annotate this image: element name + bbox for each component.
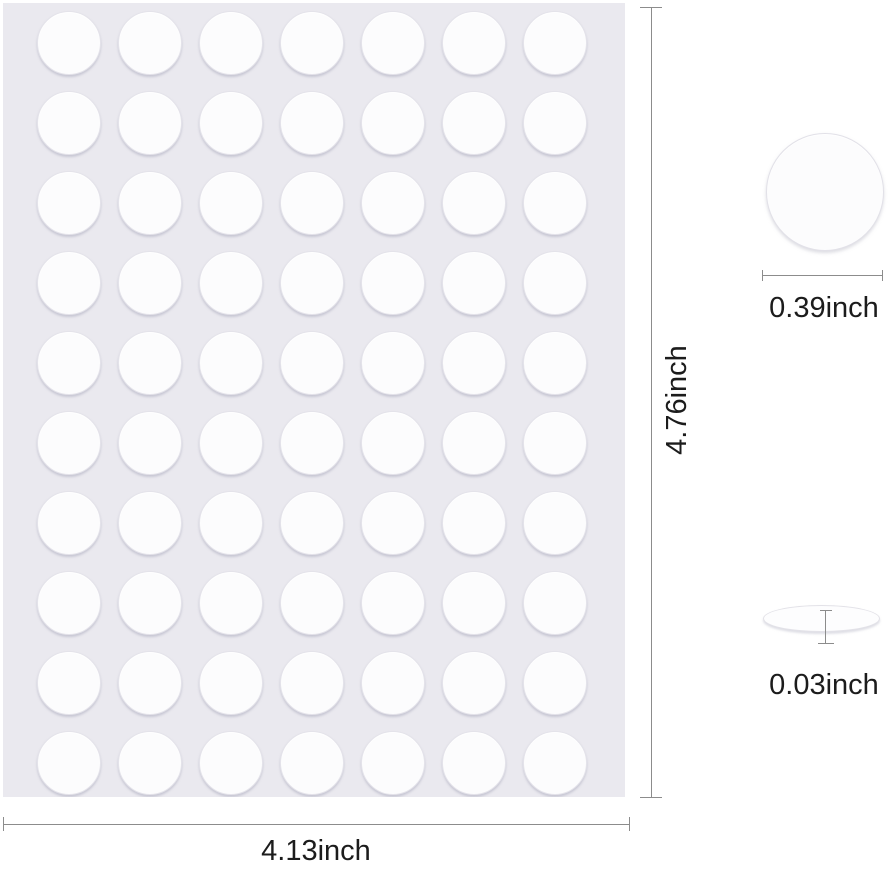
adhesive-dot <box>280 651 344 715</box>
dot-diameter-label: 0.39inch <box>769 293 879 325</box>
adhesive-dot <box>37 491 101 555</box>
dot-thickness-cap-top <box>820 610 832 611</box>
sheet-height-label: 4.76inch <box>662 345 694 455</box>
adhesive-dot <box>442 731 506 795</box>
adhesive-dot <box>118 11 182 75</box>
sheet-width-dimension-line <box>3 824 630 825</box>
adhesive-dot <box>523 731 587 795</box>
adhesive-dot <box>280 171 344 235</box>
dot-diameter-tick-right <box>882 270 883 281</box>
adhesive-dot <box>199 651 263 715</box>
adhesive-dot <box>523 491 587 555</box>
adhesive-dot <box>199 411 263 475</box>
adhesive-dot <box>118 91 182 155</box>
adhesive-dot <box>280 11 344 75</box>
adhesive-dot <box>118 411 182 475</box>
adhesive-dot <box>199 11 263 75</box>
dot-thickness-label: 0.03inch <box>769 670 879 702</box>
adhesive-dot <box>118 331 182 395</box>
adhesive-dot <box>523 171 587 235</box>
adhesive-dot <box>118 651 182 715</box>
sheet-width-dimension-tick-right <box>629 817 630 831</box>
adhesive-dot <box>361 571 425 635</box>
adhesive-dot <box>361 651 425 715</box>
adhesive-dot <box>361 331 425 395</box>
adhesive-dot <box>199 571 263 635</box>
adhesive-dot <box>361 251 425 315</box>
adhesive-dot <box>37 651 101 715</box>
adhesive-dot <box>442 91 506 155</box>
dot-diameter-dimension-line <box>762 275 883 276</box>
adhesive-dot <box>361 11 425 75</box>
adhesive-dot <box>442 251 506 315</box>
adhesive-dot <box>199 91 263 155</box>
adhesive-dot <box>442 411 506 475</box>
adhesive-dot <box>37 411 101 475</box>
adhesive-dot <box>280 731 344 795</box>
adhesive-dot <box>199 491 263 555</box>
dot-thickness-cap-bottom <box>818 643 834 644</box>
adhesive-dot <box>442 491 506 555</box>
adhesive-dot <box>280 571 344 635</box>
adhesive-dot <box>37 91 101 155</box>
adhesive-dot <box>523 571 587 635</box>
dots-grid <box>37 11 587 795</box>
adhesive-dot <box>37 571 101 635</box>
adhesive-dot <box>361 171 425 235</box>
adhesive-dot <box>523 91 587 155</box>
adhesive-dot <box>37 251 101 315</box>
single-dot-front-view <box>766 133 884 251</box>
sheet-height-dimension-cap-bottom <box>640 797 662 798</box>
dot-thickness-dimension-line <box>825 611 826 644</box>
adhesive-dot <box>280 411 344 475</box>
adhesive-dot <box>523 411 587 475</box>
adhesive-dot <box>280 251 344 315</box>
adhesive-dot <box>199 331 263 395</box>
dot-diameter-tick-left <box>762 270 763 281</box>
sheet-width-label: 4.13inch <box>261 836 371 868</box>
adhesive-dot <box>361 91 425 155</box>
adhesive-dot <box>442 171 506 235</box>
adhesive-dot <box>523 331 587 395</box>
sheet-height-dimension-line <box>651 8 652 798</box>
adhesive-dot <box>118 251 182 315</box>
adhesive-dot <box>523 651 587 715</box>
adhesive-dot <box>361 731 425 795</box>
adhesive-dot <box>118 731 182 795</box>
adhesive-dot <box>37 11 101 75</box>
adhesive-dot <box>442 651 506 715</box>
adhesive-dot <box>199 171 263 235</box>
adhesive-dot <box>37 731 101 795</box>
adhesive-dot <box>361 491 425 555</box>
sheet-width-dimension-tick-left <box>3 817 4 831</box>
adhesive-dot <box>199 251 263 315</box>
adhesive-dot <box>442 331 506 395</box>
adhesive-dot <box>523 251 587 315</box>
adhesive-dot <box>280 491 344 555</box>
adhesive-dot <box>199 731 263 795</box>
adhesive-dot <box>523 11 587 75</box>
adhesive-dot <box>118 571 182 635</box>
adhesive-dot <box>280 91 344 155</box>
adhesive-dot <box>118 171 182 235</box>
product-dimension-diagram: 4.76inch 4.13inch 0.39inch 0.03inch <box>0 0 889 870</box>
dots-sheet <box>3 3 625 797</box>
adhesive-dot <box>280 331 344 395</box>
adhesive-dot <box>118 491 182 555</box>
adhesive-dot <box>361 411 425 475</box>
sheet-height-dimension-cap-top <box>640 7 662 8</box>
adhesive-dot <box>37 331 101 395</box>
adhesive-dot <box>442 571 506 635</box>
adhesive-dot <box>442 11 506 75</box>
adhesive-dot <box>37 171 101 235</box>
